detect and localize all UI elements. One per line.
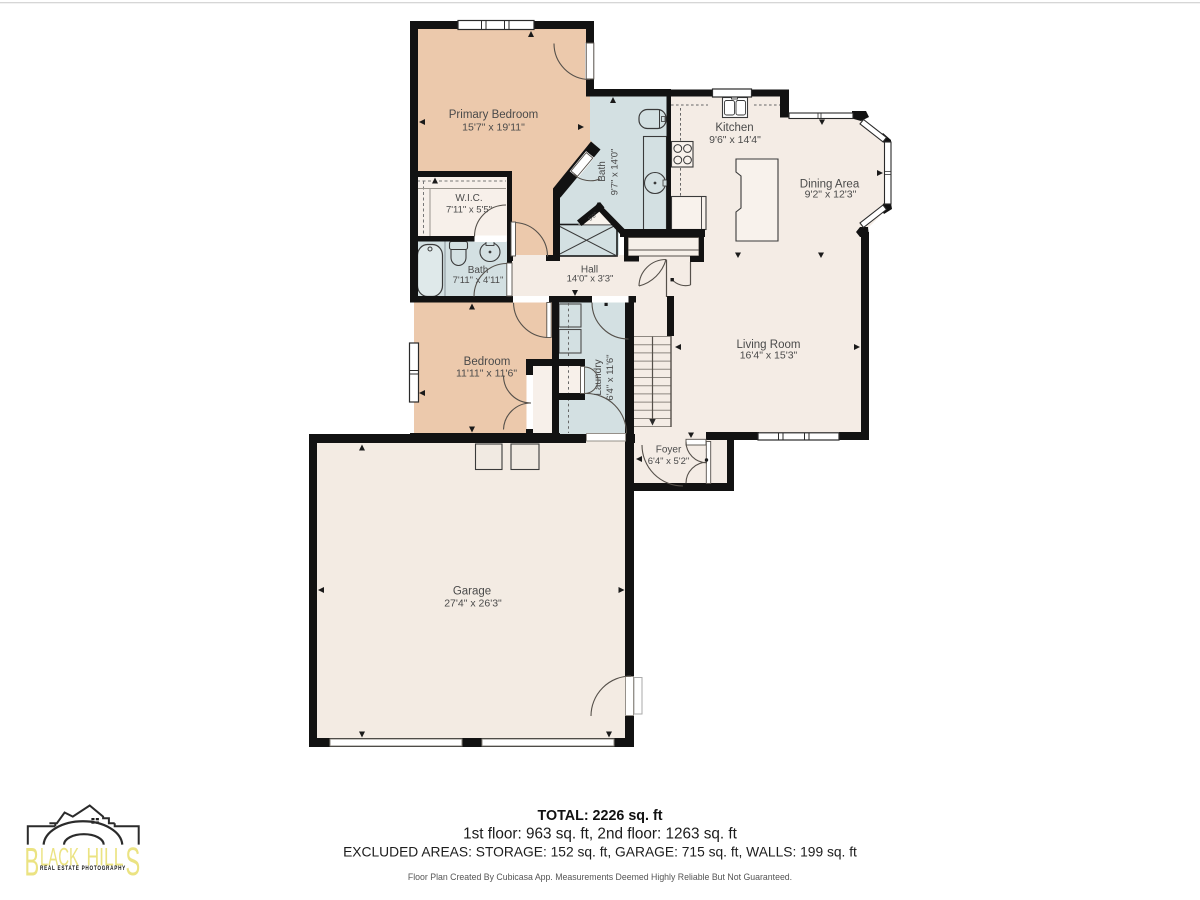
svg-text:W.I.C.: W.I.C. bbox=[455, 193, 482, 204]
svg-text:14'0" x 3'3": 14'0" x 3'3" bbox=[567, 274, 614, 285]
svg-text:11'11" x 11'6": 11'11" x 11'6" bbox=[456, 368, 517, 380]
svg-text:7'11" x 5'5": 7'11" x 5'5" bbox=[446, 205, 492, 216]
svg-text:S: S bbox=[126, 839, 141, 884]
svg-text:7'11" x 4'11": 7'11" x 4'11" bbox=[453, 275, 504, 286]
svg-text:EXCLUDED AREAS: STORAGE: 152 s: EXCLUDED AREAS: STORAGE: 152 sq. ft, GAR… bbox=[343, 845, 857, 860]
svg-text:Bedroom: Bedroom bbox=[464, 356, 511, 368]
svg-text:Foyer: Foyer bbox=[656, 445, 682, 456]
svg-text:15'7" x 19'11": 15'7" x 19'11" bbox=[462, 122, 525, 134]
svg-text:REAL ESTATE PHOTOGRAPHY: REAL ESTATE PHOTOGRAPHY bbox=[40, 865, 126, 872]
svg-text:Garage: Garage bbox=[453, 586, 491, 598]
svg-text:6'4" x 11'6": 6'4" x 11'6" bbox=[605, 354, 616, 400]
svg-text:1st floor: 963 sq. ft, 2nd flo: 1st floor: 963 sq. ft, 2nd floor: 1263 s… bbox=[463, 826, 738, 843]
svg-text:Bath: Bath bbox=[597, 161, 608, 182]
svg-text:27'4" x 26'3": 27'4" x 26'3" bbox=[444, 598, 502, 610]
svg-text:9'7" x 14'0": 9'7" x 14'0" bbox=[610, 149, 621, 196]
svg-text:6'4" x 5'2": 6'4" x 5'2" bbox=[648, 456, 690, 467]
svg-text:Kitchen: Kitchen bbox=[715, 122, 753, 134]
svg-text:B: B bbox=[25, 840, 40, 885]
svg-text:Floor Plan Created By Cubicasa: Floor Plan Created By Cubicasa App. Meas… bbox=[408, 872, 792, 882]
svg-text:TOTAL: 2226 sq. ft: TOTAL: 2226 sq. ft bbox=[538, 808, 663, 824]
svg-text:Primary Bedroom: Primary Bedroom bbox=[449, 109, 538, 121]
svg-text:Laundry: Laundry bbox=[593, 359, 604, 395]
svg-text:9'6" x 14'4": 9'6" x 14'4" bbox=[709, 134, 761, 146]
svg-text:16'4" x 15'3": 16'4" x 15'3" bbox=[740, 350, 798, 362]
svg-text:9'2" x 12'3": 9'2" x 12'3" bbox=[805, 189, 857, 201]
